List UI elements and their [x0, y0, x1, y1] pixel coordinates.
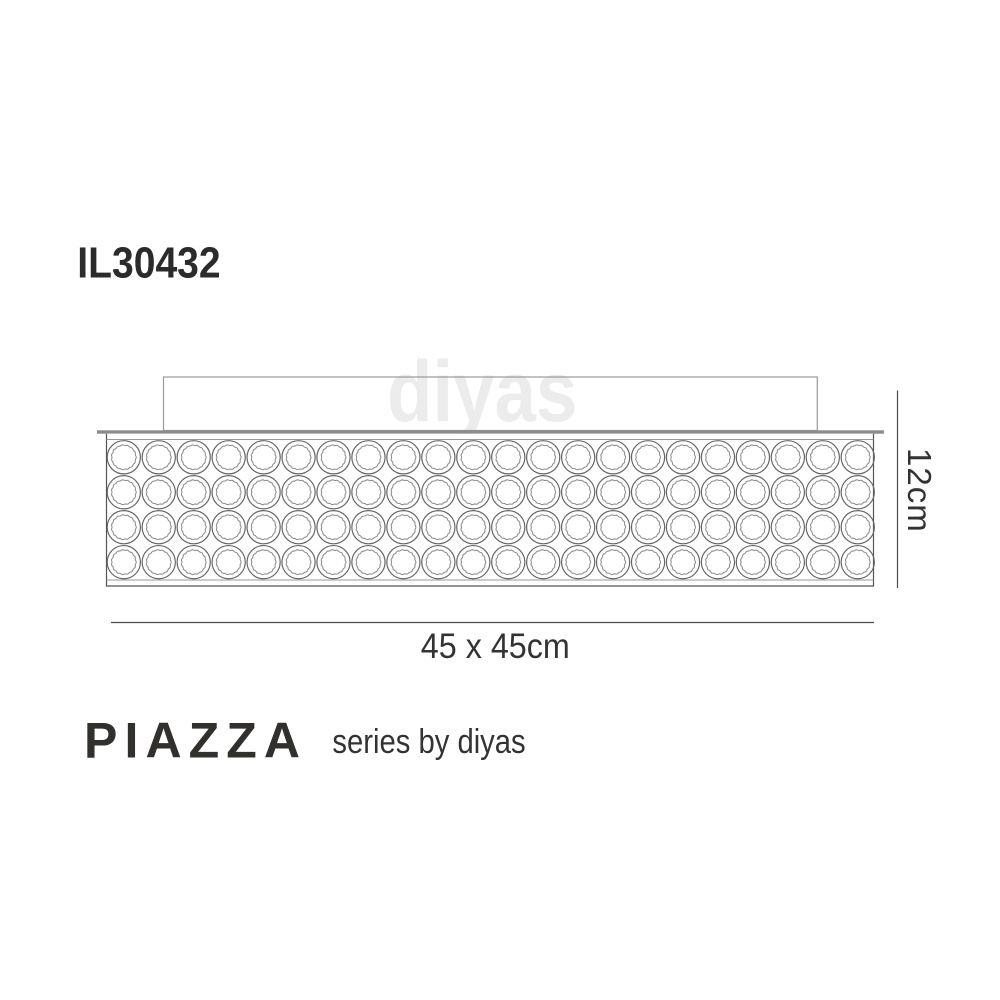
svg-text:45 x 45cm: 45 x 45cm [421, 627, 570, 667]
svg-text:PIAZZA: PIAZZA [84, 713, 307, 769]
svg-text:IL30432: IL30432 [77, 237, 220, 287]
svg-text:diyas: diyas [387, 344, 577, 440]
svg-text:series by diyas: series by diyas [332, 722, 525, 761]
svg-text:12cm: 12cm [901, 448, 938, 533]
